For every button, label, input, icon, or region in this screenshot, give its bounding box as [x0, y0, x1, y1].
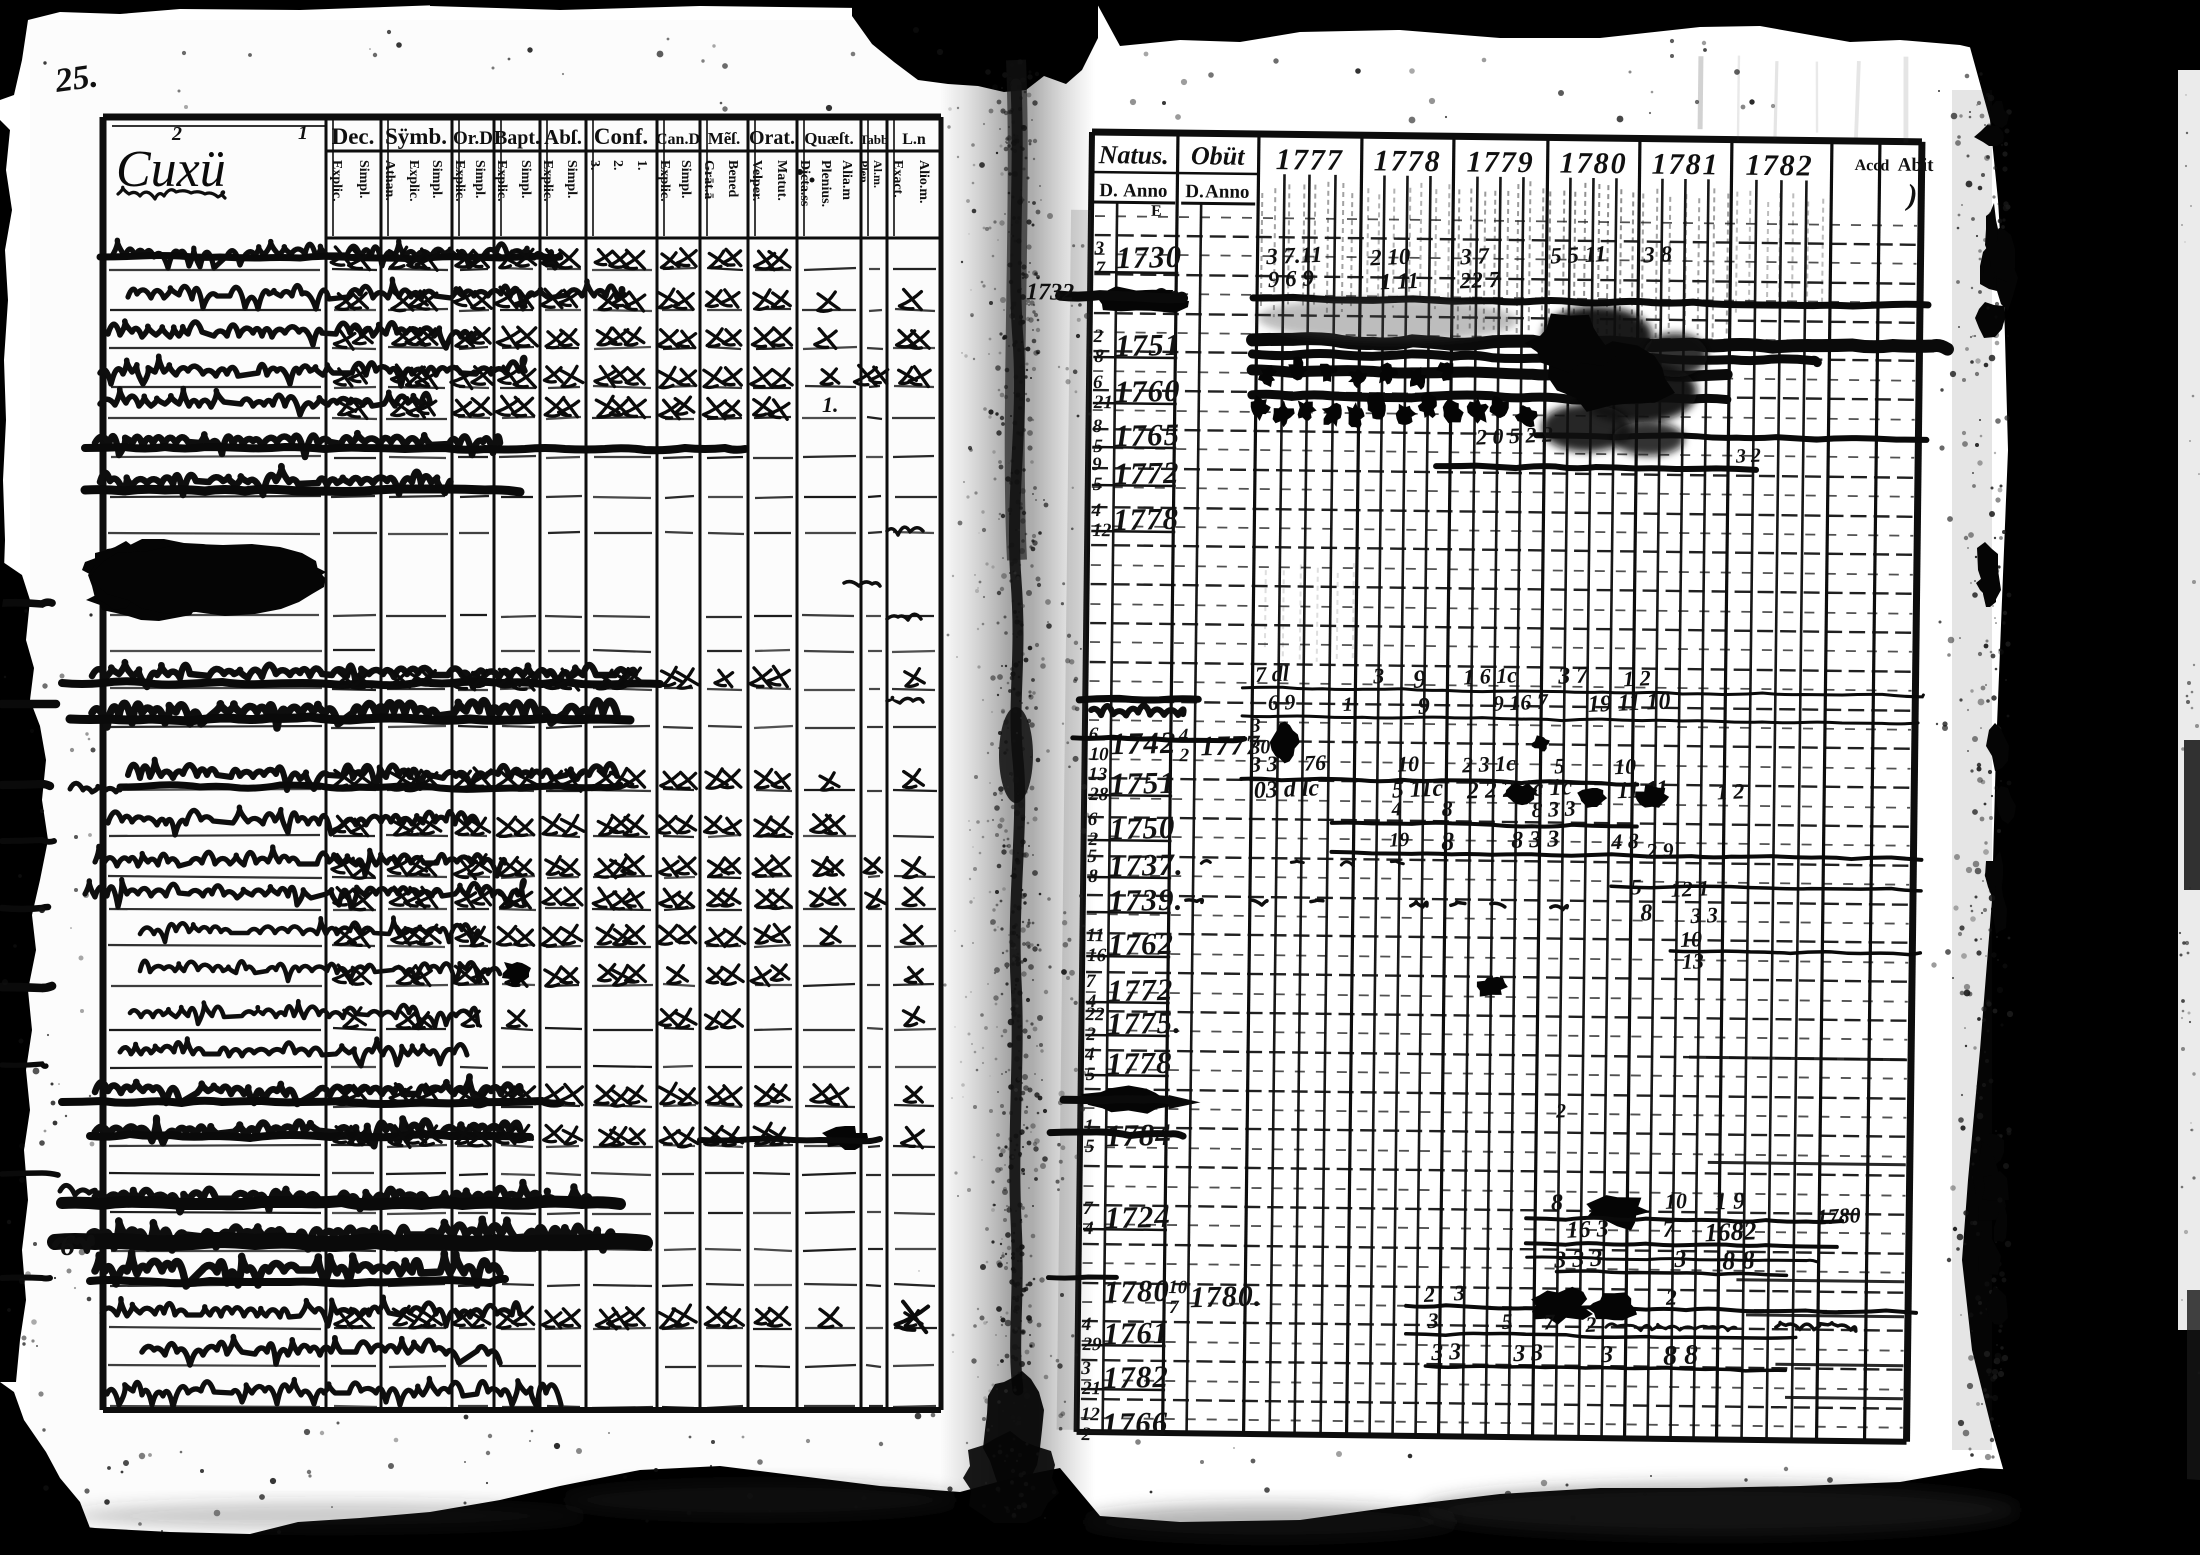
svg-text:Or.D: Or.D	[453, 128, 493, 149]
svg-text:Dec.: Dec.	[332, 124, 375, 149]
svg-text:Tabb: Tabb	[860, 132, 888, 147]
svg-text:8: 8	[1640, 900, 1653, 926]
svg-text:6: 6	[60, 1229, 75, 1262]
svg-text:8: 8	[1441, 827, 1455, 857]
svg-text:Explic.: Explic.	[657, 160, 672, 202]
svg-text:Al.m.: Al.m.	[871, 160, 885, 188]
svg-text:3.: 3.	[587, 160, 602, 171]
svg-text:1780: 1780	[1559, 147, 1627, 181]
svg-text:3: 3	[1426, 1308, 1439, 1333]
svg-text:1 11: 1 11	[1379, 268, 1419, 295]
svg-text:Simpl.: Simpl.	[429, 160, 444, 199]
svg-text:8: 8	[1550, 1190, 1563, 1216]
svg-text:1777: 1777	[1275, 143, 1343, 177]
svg-text:3 3: 3 3	[1249, 751, 1278, 777]
svg-text:Obüt: Obüt	[1191, 141, 1246, 171]
svg-text:Quæſt.: Quæſt.	[804, 129, 854, 148]
svg-text:Athan.: Athan.	[382, 160, 397, 201]
svg-text:76: 76	[1304, 750, 1327, 776]
svg-text:Sÿmb.: Sÿmb.	[385, 124, 447, 149]
svg-text:2: 2	[1664, 1284, 1677, 1309]
svg-text:3: 3	[1600, 1342, 1614, 1369]
svg-text:8: 8	[1092, 416, 1102, 437]
svg-text:3 7: 3 7	[1557, 662, 1590, 689]
svg-text:2 3 1c: 2 3 1c	[1461, 750, 1517, 777]
svg-text:1 2: 1 2	[1623, 665, 1651, 691]
svg-text:3: 3	[1080, 1358, 1091, 1379]
svg-text:Simpl.: Simpl.	[472, 160, 487, 199]
svg-text:7: 7	[1543, 1309, 1556, 1334]
svg-text:7: 7	[1662, 1216, 1676, 1243]
svg-text:1782: 1782	[1745, 149, 1813, 183]
svg-text:2 0 5 2 2: 2 0 5 2 2	[1475, 421, 1554, 449]
svg-text:4: 4	[1178, 725, 1189, 746]
svg-text:Explic.: Explic.	[540, 160, 555, 202]
svg-text:Anno: Anno	[1123, 180, 1168, 202]
svg-text:Explic.: Explic.	[329, 160, 344, 202]
svg-text:Natus.: Natus.	[1098, 140, 1169, 170]
svg-text:2: 2	[1178, 745, 1189, 766]
svg-text:3 8: 3 8	[1642, 241, 1673, 267]
svg-text:1781: 1781	[1651, 148, 1719, 182]
svg-text:9 16 7: 9 16 7	[1492, 689, 1549, 716]
svg-text:3: 3	[1372, 663, 1385, 688]
svg-text:03 d lc: 03 d lc	[1253, 775, 1320, 804]
svg-text:12: 12	[1081, 1404, 1101, 1425]
svg-text:1730: 1730	[1116, 239, 1183, 276]
svg-text:Conf.: Conf.	[594, 124, 648, 149]
svg-text:Dicta.ss: Dicta.ss	[797, 160, 812, 207]
svg-text:Accd: Accd	[1855, 157, 1890, 174]
svg-text:10: 10	[1614, 753, 1637, 779]
svg-text:4: 4	[1081, 1314, 1092, 1335]
svg-text:16 3: 16 3	[1566, 1216, 1609, 1244]
svg-text:7 dl: 7 dl	[1255, 661, 1290, 687]
svg-text:5 5 11: 5 5 11	[1550, 241, 1607, 268]
svg-text:Can.D: Can.D	[656, 131, 700, 148]
svg-text:Explic.: Explic.	[406, 160, 421, 202]
svg-text:19 11 10: 19 11 10	[1587, 689, 1671, 718]
svg-text:2: 2	[1555, 1100, 1567, 1122]
svg-text:3 3: 3 3	[1430, 1339, 1462, 1366]
svg-text:2: 2	[1584, 1312, 1597, 1337]
svg-text:3 2: 3 2	[1734, 445, 1761, 468]
svg-text:Orat.: Orat.	[749, 127, 795, 149]
svg-text:1742: 1742	[1110, 725, 1177, 762]
svg-text:Explic.: Explic.	[452, 160, 467, 202]
svg-text:3 7.11: 3 7.11	[1265, 242, 1323, 269]
svg-text:1 6 1c: 1 6 1c	[1463, 662, 1518, 689]
svg-text:2 10: 2 10	[1369, 244, 1412, 271]
svg-text:2: 2	[171, 123, 182, 145]
svg-text:Alia.m: Alia.m	[839, 160, 854, 200]
svg-text:4: 4	[1090, 500, 1101, 521]
svg-text:4: 4	[1084, 1044, 1095, 1065]
svg-text:3: 3	[1249, 715, 1261, 737]
svg-text:11: 11	[1086, 925, 1104, 946]
svg-text:13: 13	[1088, 764, 1107, 785]
svg-text:Mẽſ.: Mẽſ.	[708, 129, 741, 148]
svg-text:10: 10	[1089, 744, 1109, 765]
svg-text:Simpl.: Simpl.	[518, 160, 533, 199]
svg-text:1: 1	[1342, 694, 1353, 716]
svg-text:6: 6	[1089, 724, 1099, 745]
svg-text:1780: 1780	[1816, 1202, 1861, 1230]
svg-text:Alio.m.: Alio.m.	[916, 160, 931, 204]
svg-text:1: 1	[298, 122, 308, 144]
svg-text:Explic.: Explic.	[494, 160, 509, 202]
svg-text:9 6 9: 9 6 9	[1267, 265, 1314, 292]
svg-text:1766: 1766	[1102, 1405, 1169, 1442]
svg-text:22: 22	[1084, 1004, 1105, 1025]
svg-text:6 9: 6 9	[1267, 689, 1295, 715]
svg-text:2.: 2.	[610, 160, 625, 171]
svg-text:9: 9	[1092, 454, 1102, 475]
svg-text:1779: 1779	[1466, 145, 1534, 179]
svg-text:3 3: 3 3	[1689, 902, 1718, 928]
svg-text:Velper.: Velper.	[749, 160, 764, 201]
svg-text:10: 10	[1168, 1277, 1188, 1298]
svg-text:8 3 3: 8 3 3	[1531, 796, 1576, 823]
svg-text:1.: 1.	[634, 160, 649, 171]
svg-text:10: 10	[1397, 751, 1420, 777]
svg-text:6: 6	[1088, 809, 1098, 830]
svg-text:3 7: 3 7	[1459, 243, 1491, 269]
svg-text:8: 8	[1441, 796, 1453, 821]
svg-text:4: 4	[1390, 798, 1402, 820]
svg-text:E: E	[1151, 203, 1162, 220]
svg-text:Plen.: Plen.	[857, 160, 871, 186]
svg-text:2 9: 2 9	[1645, 838, 1674, 864]
svg-text:8 3 3: 8 3 3	[1511, 826, 1560, 854]
svg-text:1780.: 1780.	[1189, 1280, 1262, 1315]
svg-text:Matut.: Matut.	[774, 160, 789, 201]
svg-text:Anno: Anno	[1205, 181, 1250, 203]
svg-text:Plenius.: Plenius.	[818, 160, 833, 207]
svg-text:3: 3	[1452, 1280, 1465, 1305]
svg-text:2: 2	[1080, 1424, 1091, 1445]
svg-text:6: 6	[1093, 372, 1103, 393]
svg-text:3 3: 3 3	[1512, 1340, 1544, 1367]
svg-text:Simpl.: Simpl.	[356, 160, 371, 199]
svg-text:19: 19	[1389, 829, 1410, 852]
svg-text:1778: 1778	[1373, 144, 1441, 178]
svg-text:2: 2	[1422, 1282, 1435, 1307]
svg-text:1.: 1.	[822, 392, 839, 417]
svg-text:Abſ.: Abſ.	[544, 125, 582, 149]
svg-text:5: 5	[1501, 1309, 1513, 1334]
svg-text:5: 5	[1087, 846, 1097, 867]
svg-text:5: 5	[1085, 1136, 1095, 1157]
svg-text:Grāt.ā: Grāt.ā	[701, 160, 716, 199]
svg-text:2: 2	[1092, 326, 1103, 347]
svg-text:12 1: 12 1	[1670, 875, 1709, 902]
svg-text:10: 10	[1664, 1188, 1687, 1214]
svg-text:Bened: Bened	[725, 160, 740, 198]
svg-text:22 7: 22 7	[1458, 267, 1502, 294]
svg-text:Bapt.: Bapt.	[494, 127, 540, 149]
svg-text:D.: D.	[1185, 181, 1204, 202]
svg-text:1 2: 1 2	[1716, 778, 1744, 804]
svg-text:Abit: Abit	[1898, 155, 1935, 176]
svg-text:Simpl.: Simpl.	[564, 160, 579, 199]
svg-text:Exact.: Exact.	[890, 160, 905, 198]
svg-text:1 9: 1 9	[1714, 1188, 1745, 1215]
svg-text:L.n: L.n	[902, 131, 926, 148]
svg-text:3: 3	[1093, 238, 1104, 259]
svg-text:Simpl.: Simpl.	[678, 160, 693, 199]
svg-text:4 8: 4 8	[1610, 828, 1639, 854]
svg-text:25.: 25.	[52, 57, 100, 100]
svg-text:D.: D.	[1099, 180, 1118, 201]
